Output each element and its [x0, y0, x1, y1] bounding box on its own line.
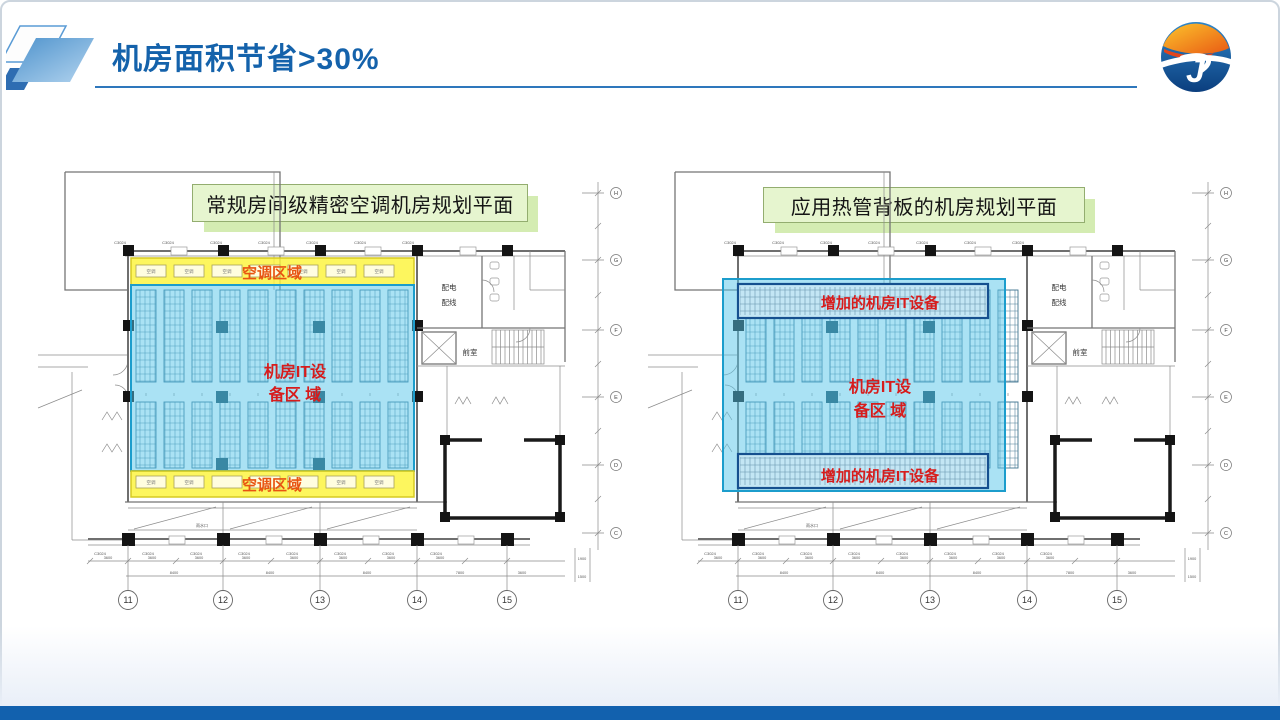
page-title: 机房面积节省>30% [112, 34, 380, 78]
header-chevron-decoration [6, 20, 106, 92]
header-underline [95, 86, 1137, 88]
floor-plan-right-overlays: 增加的机房IT设备 机房IT设 备区 域 增加的机房IT设备 [723, 279, 1005, 491]
ac-zone-bottom-label: 空调区域 [242, 476, 302, 494]
svg-text:空调: 空调 [147, 479, 156, 486]
svg-text:空调: 空调 [223, 268, 232, 275]
svg-text:空调: 空调 [185, 479, 194, 486]
it-zone-label-line1-right: 机房IT设 [849, 377, 912, 396]
added-it-box-top: 增加的机房IT设备 [738, 284, 988, 318]
added-it-box-bottom: 增加的机房IT设备 [738, 454, 988, 488]
svg-text:空调: 空调 [337, 268, 346, 275]
it-zone-label-line1-left: 机房IT设 [264, 362, 327, 381]
floor-plan-left-overlays: 空调 空调 空调 空调 空调 空调 空调区域 空调 空调 空调 空调 空调区域 … [131, 258, 414, 497]
ac-zone-top-label: 空调区域 [242, 264, 302, 282]
added-it-top-label: 增加的机房IT设备 [821, 294, 940, 312]
footer-bar [0, 706, 1280, 720]
it-zone-label-line2-right: 备区 域 [853, 401, 906, 420]
svg-text:空调: 空调 [185, 268, 194, 275]
floor-plans-canvas: C3024 C3024 C3024 C3024 C3024 C3024 C302… [0, 130, 1280, 710]
svg-text:空调: 空调 [147, 268, 156, 275]
svg-text:空调: 空调 [375, 479, 384, 486]
company-logo: J [1156, 16, 1236, 96]
svg-text:空调: 空调 [375, 268, 384, 275]
added-it-bottom-label: 增加的机房IT设备 [821, 467, 940, 485]
svg-text:空调: 空调 [337, 479, 346, 486]
logo-letter: J [1186, 52, 1206, 90]
logo-orange-arc [1163, 24, 1229, 54]
footer-fade [0, 626, 1280, 706]
it-zone-label-line2-left: 备区 域 [268, 385, 321, 404]
